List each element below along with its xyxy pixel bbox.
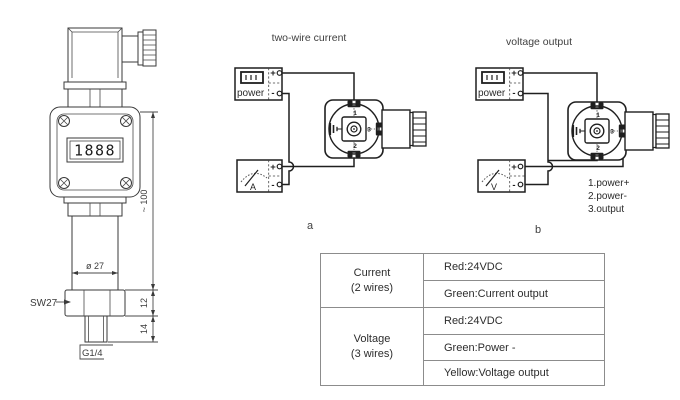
diagram-b-title: voltage output — [506, 36, 572, 48]
power-label-a: power — [237, 88, 265, 99]
height-dim-label: ~ 100 — [139, 190, 149, 213]
terminal-plus — [277, 164, 282, 169]
ammeter-label: A — [250, 182, 256, 192]
voltmeter: V + - — [478, 160, 525, 192]
pin-legend: 1.power+ 2.power- 3.output — [588, 178, 630, 215]
minus-sign: - — [512, 180, 515, 191]
group-wires-note: (3 wires) — [321, 347, 423, 361]
thread-size-callout: G1/4 — [80, 345, 113, 359]
group-type: Current — [321, 266, 423, 280]
pin-legend-line: 3.output — [588, 204, 624, 215]
transmitter-plug — [68, 28, 156, 82]
terminal-minus — [518, 91, 523, 96]
minus-sign: - — [512, 88, 515, 99]
wire-desc: Yellow:Voltage output — [424, 361, 605, 386]
terminal-minus — [277, 182, 282, 187]
wire-desc: Green:Current output — [424, 281, 605, 308]
diagram-a-caption: a — [307, 220, 314, 232]
transmitter-upper-neck — [64, 82, 126, 107]
wiring-group-voltage: Voltage (3 wires) — [321, 308, 424, 386]
plus-sign: + — [511, 68, 517, 79]
power-display-icon — [241, 72, 263, 83]
plus-sign: + — [511, 162, 517, 173]
table-row: Current (2 wires) Red:24VDC — [321, 254, 605, 281]
hex-height-dim-label: 12 — [139, 298, 149, 308]
diameter-dim-label: ø 27 — [86, 261, 104, 271]
transmitter-lower-body — [64, 197, 126, 290]
wire-desc: Green:Power - — [424, 335, 605, 361]
diagram-voltage-output: voltage output power + - — [460, 0, 680, 250]
terminal-plus — [277, 71, 282, 76]
transmitter-thread — [85, 316, 107, 342]
transmitter-hex-nut — [65, 290, 125, 316]
table-row: Voltage (3 wires) Red:24VDC — [321, 308, 605, 335]
lcd-display-value: 1888 — [74, 142, 116, 160]
ammeter: A + - — [237, 160, 282, 192]
power-supply-b: power + - — [476, 68, 523, 100]
wire-desc: Red:24VDC — [424, 254, 605, 281]
thread-height-dim-label: 14 — [139, 324, 149, 334]
group-wires-note: (2 wires) — [321, 281, 423, 295]
plus-sign: + — [270, 162, 276, 173]
terminal-minus — [518, 182, 523, 187]
terminal-minus — [277, 91, 282, 96]
minus-sign: - — [271, 180, 274, 191]
wire-desc: Red:24VDC — [424, 308, 605, 335]
din-connector-b — [568, 102, 669, 160]
terminal-plus — [518, 71, 523, 76]
wiring-group-current: Current (2 wires) — [321, 254, 424, 308]
transmitter-drawing: 1 2 3 — [0, 0, 230, 400]
page: 1 2 3 — [0, 0, 680, 400]
din-connector-a — [325, 100, 426, 158]
wiring-table: Current (2 wires) Red:24VDC Green:Curren… — [320, 253, 605, 386]
thread-label: G1/4 — [82, 348, 103, 359]
minus-sign: - — [271, 88, 274, 99]
dimension-diameter: ø 27 — [72, 261, 118, 275]
power-display-icon — [482, 72, 504, 83]
power-label-b: power — [478, 88, 506, 99]
plus-sign: + — [270, 68, 276, 79]
diagram-a-title: two-wire current — [272, 32, 347, 44]
voltmeter-label: V — [491, 182, 497, 192]
power-supply-a: power + - — [235, 68, 282, 100]
pin-legend-line: 1.power+ — [588, 178, 630, 189]
group-type: Voltage — [321, 332, 423, 346]
wrench-label: SW27 — [30, 298, 58, 309]
terminal-plus — [518, 164, 523, 169]
pin-legend-line: 2.power- — [588, 191, 627, 202]
diagram-two-wire-current: two-wire current power + - — [230, 0, 460, 250]
transmitter-housing: 1888 — [50, 107, 140, 197]
diagram-b-caption: b — [535, 224, 541, 236]
